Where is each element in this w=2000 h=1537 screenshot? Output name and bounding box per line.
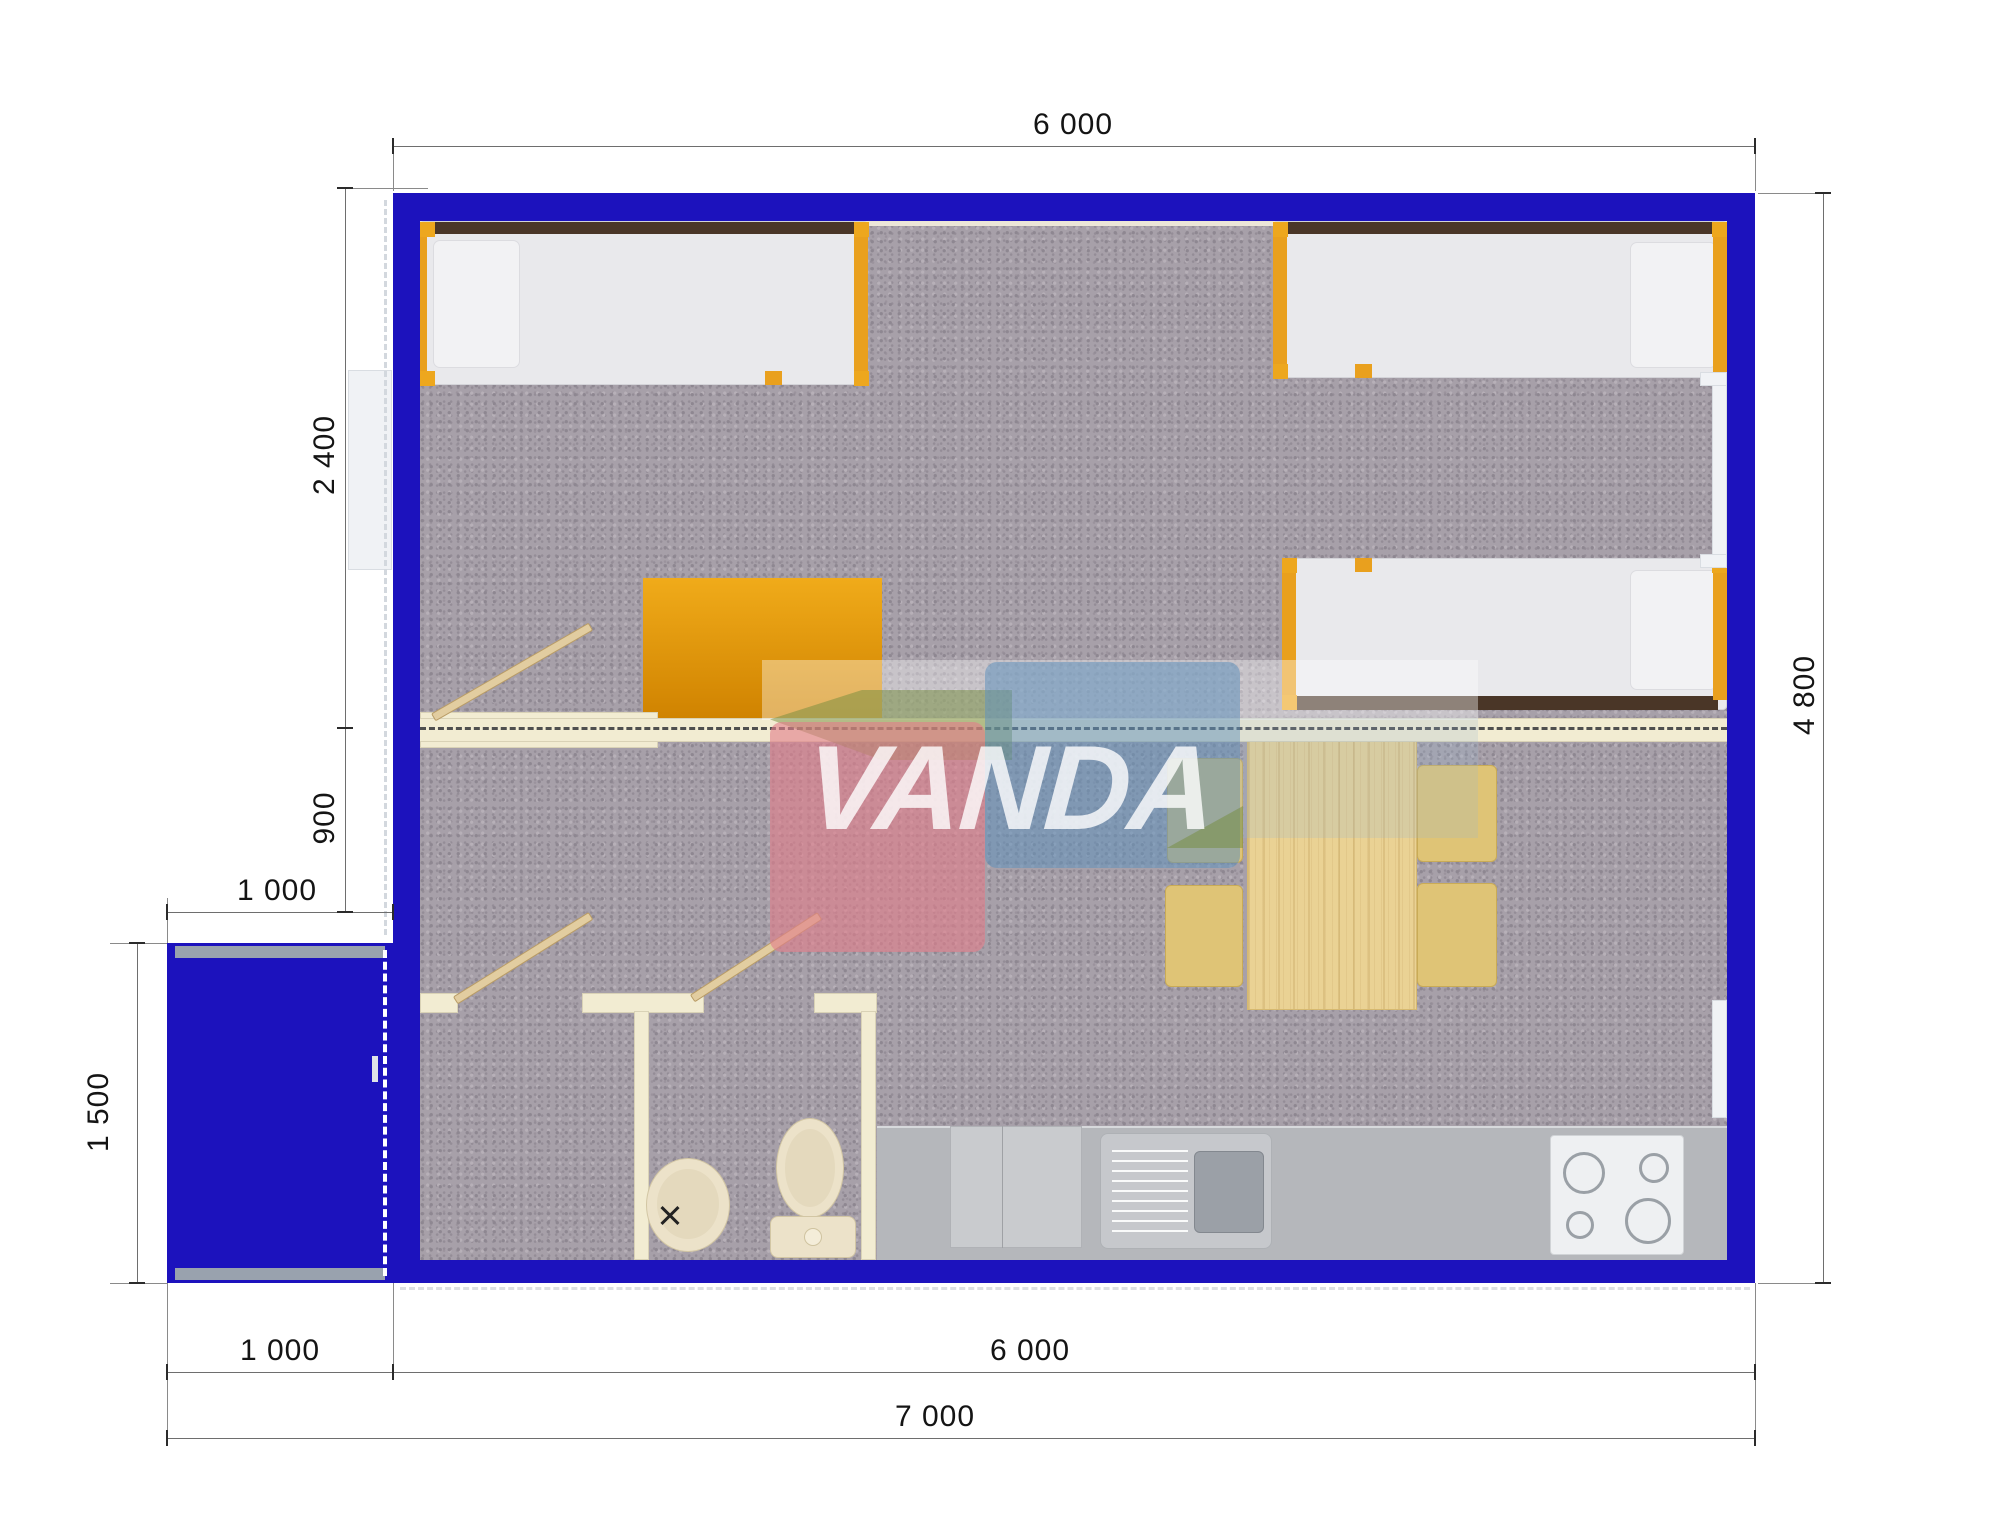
logo-text: VANDA — [771, 728, 1249, 848]
window — [1712, 1000, 1727, 1118]
bed-frame-notch — [1355, 364, 1372, 378]
drainboard — [1112, 1150, 1188, 1236]
dimension-tick — [392, 904, 394, 920]
bed-frame — [1273, 226, 1287, 378]
dimension-tick — [392, 138, 394, 154]
window — [1712, 372, 1727, 568]
door-leaf — [431, 623, 593, 722]
flush-button — [804, 1228, 822, 1246]
dimension-tick — [1754, 1430, 1756, 1446]
dimension-line — [345, 188, 346, 912]
dimension-line — [167, 1438, 1755, 1439]
dimension-tick — [166, 1364, 168, 1380]
dimension-tick — [166, 1430, 168, 1446]
dim-bottom-porch-width: 1 000 — [240, 1334, 320, 1368]
bed-headboard — [1273, 222, 1718, 234]
bathroom-wall — [420, 993, 458, 1013]
dim-right-height: 4 800 — [1788, 655, 1822, 735]
door-handle-icon — [372, 1056, 378, 1082]
entry-door-dashed-line — [383, 950, 387, 1276]
bed-headboard — [420, 222, 868, 234]
sink-basin — [1194, 1151, 1264, 1233]
porch-step-top — [175, 946, 385, 958]
interior-floor: VANDA — [420, 221, 1727, 1260]
appliance-seam — [1002, 1126, 1003, 1248]
window-jamb — [1700, 372, 1727, 386]
dimension-line — [1823, 193, 1824, 1283]
bed-frame-corner — [420, 222, 435, 237]
dim-left-offset: 900 — [308, 791, 342, 844]
burner-icon — [1625, 1198, 1671, 1244]
dimension-tick — [1754, 1364, 1756, 1380]
basin-bowl — [657, 1169, 719, 1239]
bed-frame — [854, 226, 868, 385]
dimension-tick — [1815, 1282, 1831, 1284]
dimension-line — [167, 1372, 1755, 1373]
chair — [1165, 885, 1243, 987]
exterior-dashed-outline — [400, 1287, 1750, 1290]
floor-plan: VANDA 6 000 4 800 2 400 900 1 000 — [0, 0, 2000, 1537]
dim-top-width: 6 000 — [1033, 108, 1113, 142]
bed-frame — [420, 226, 427, 385]
porch-step-bottom — [175, 1268, 385, 1280]
bed-frame — [1713, 562, 1727, 700]
bed-frame-notch — [765, 371, 782, 385]
dimension-tick — [337, 727, 353, 729]
bed-frame-corner — [854, 371, 869, 386]
dimension-line — [393, 146, 1755, 147]
toilet-seat — [785, 1129, 835, 1207]
dimension-tick — [337, 911, 353, 913]
dimension-tick — [129, 942, 145, 944]
dimension-tick — [129, 1282, 145, 1284]
dim-porch-width: 1 000 — [237, 874, 317, 908]
logo-tail — [1240, 718, 1478, 838]
dim-bottom-total-width: 7 000 — [895, 1400, 975, 1434]
exterior-dashed-outline — [384, 200, 387, 935]
bathroom-wall — [634, 1011, 649, 1260]
toilet-bowl — [776, 1118, 844, 1218]
bathroom-wall — [582, 993, 704, 1013]
dimension-tick — [1815, 192, 1831, 194]
bed-pillow — [433, 240, 520, 368]
chair — [1417, 883, 1497, 987]
burner-icon — [1563, 1152, 1605, 1194]
dim-bottom-main-width: 6 000 — [990, 1334, 1070, 1368]
bathroom-wall — [814, 993, 877, 1013]
stove — [1550, 1135, 1684, 1255]
porch — [167, 943, 393, 1283]
wash-basin — [646, 1158, 730, 1252]
dimension-tick — [1754, 138, 1756, 154]
kitchen-appliance — [950, 1126, 1082, 1248]
dimension-tick — [337, 187, 353, 189]
dimension-tick — [166, 904, 168, 920]
dim-left-bedroom-depth: 2 400 — [308, 415, 342, 495]
bed-frame-corner — [854, 222, 869, 237]
bed-frame-corner — [420, 371, 435, 386]
dimension-tick — [392, 1364, 394, 1380]
extension-line — [345, 188, 428, 189]
bed-frame-corner — [1712, 222, 1727, 237]
bed-frame-corner — [1282, 558, 1297, 573]
bed-frame-notch — [1355, 558, 1372, 572]
bed-pillow — [1630, 242, 1717, 368]
bed-frame — [1713, 226, 1727, 378]
burner-icon — [1566, 1211, 1594, 1239]
door-leaf — [453, 912, 593, 1004]
bed-frame-corner — [1273, 222, 1288, 237]
dimension-line — [137, 943, 138, 1283]
window-jamb — [1700, 554, 1727, 568]
bed-frame-corner — [1273, 364, 1288, 379]
bed-pillow — [1630, 570, 1717, 690]
bathroom-wall — [861, 1011, 876, 1260]
dim-porch-depth: 1 500 — [82, 1072, 116, 1152]
dimension-line — [167, 912, 393, 913]
burner-icon — [1639, 1153, 1669, 1183]
